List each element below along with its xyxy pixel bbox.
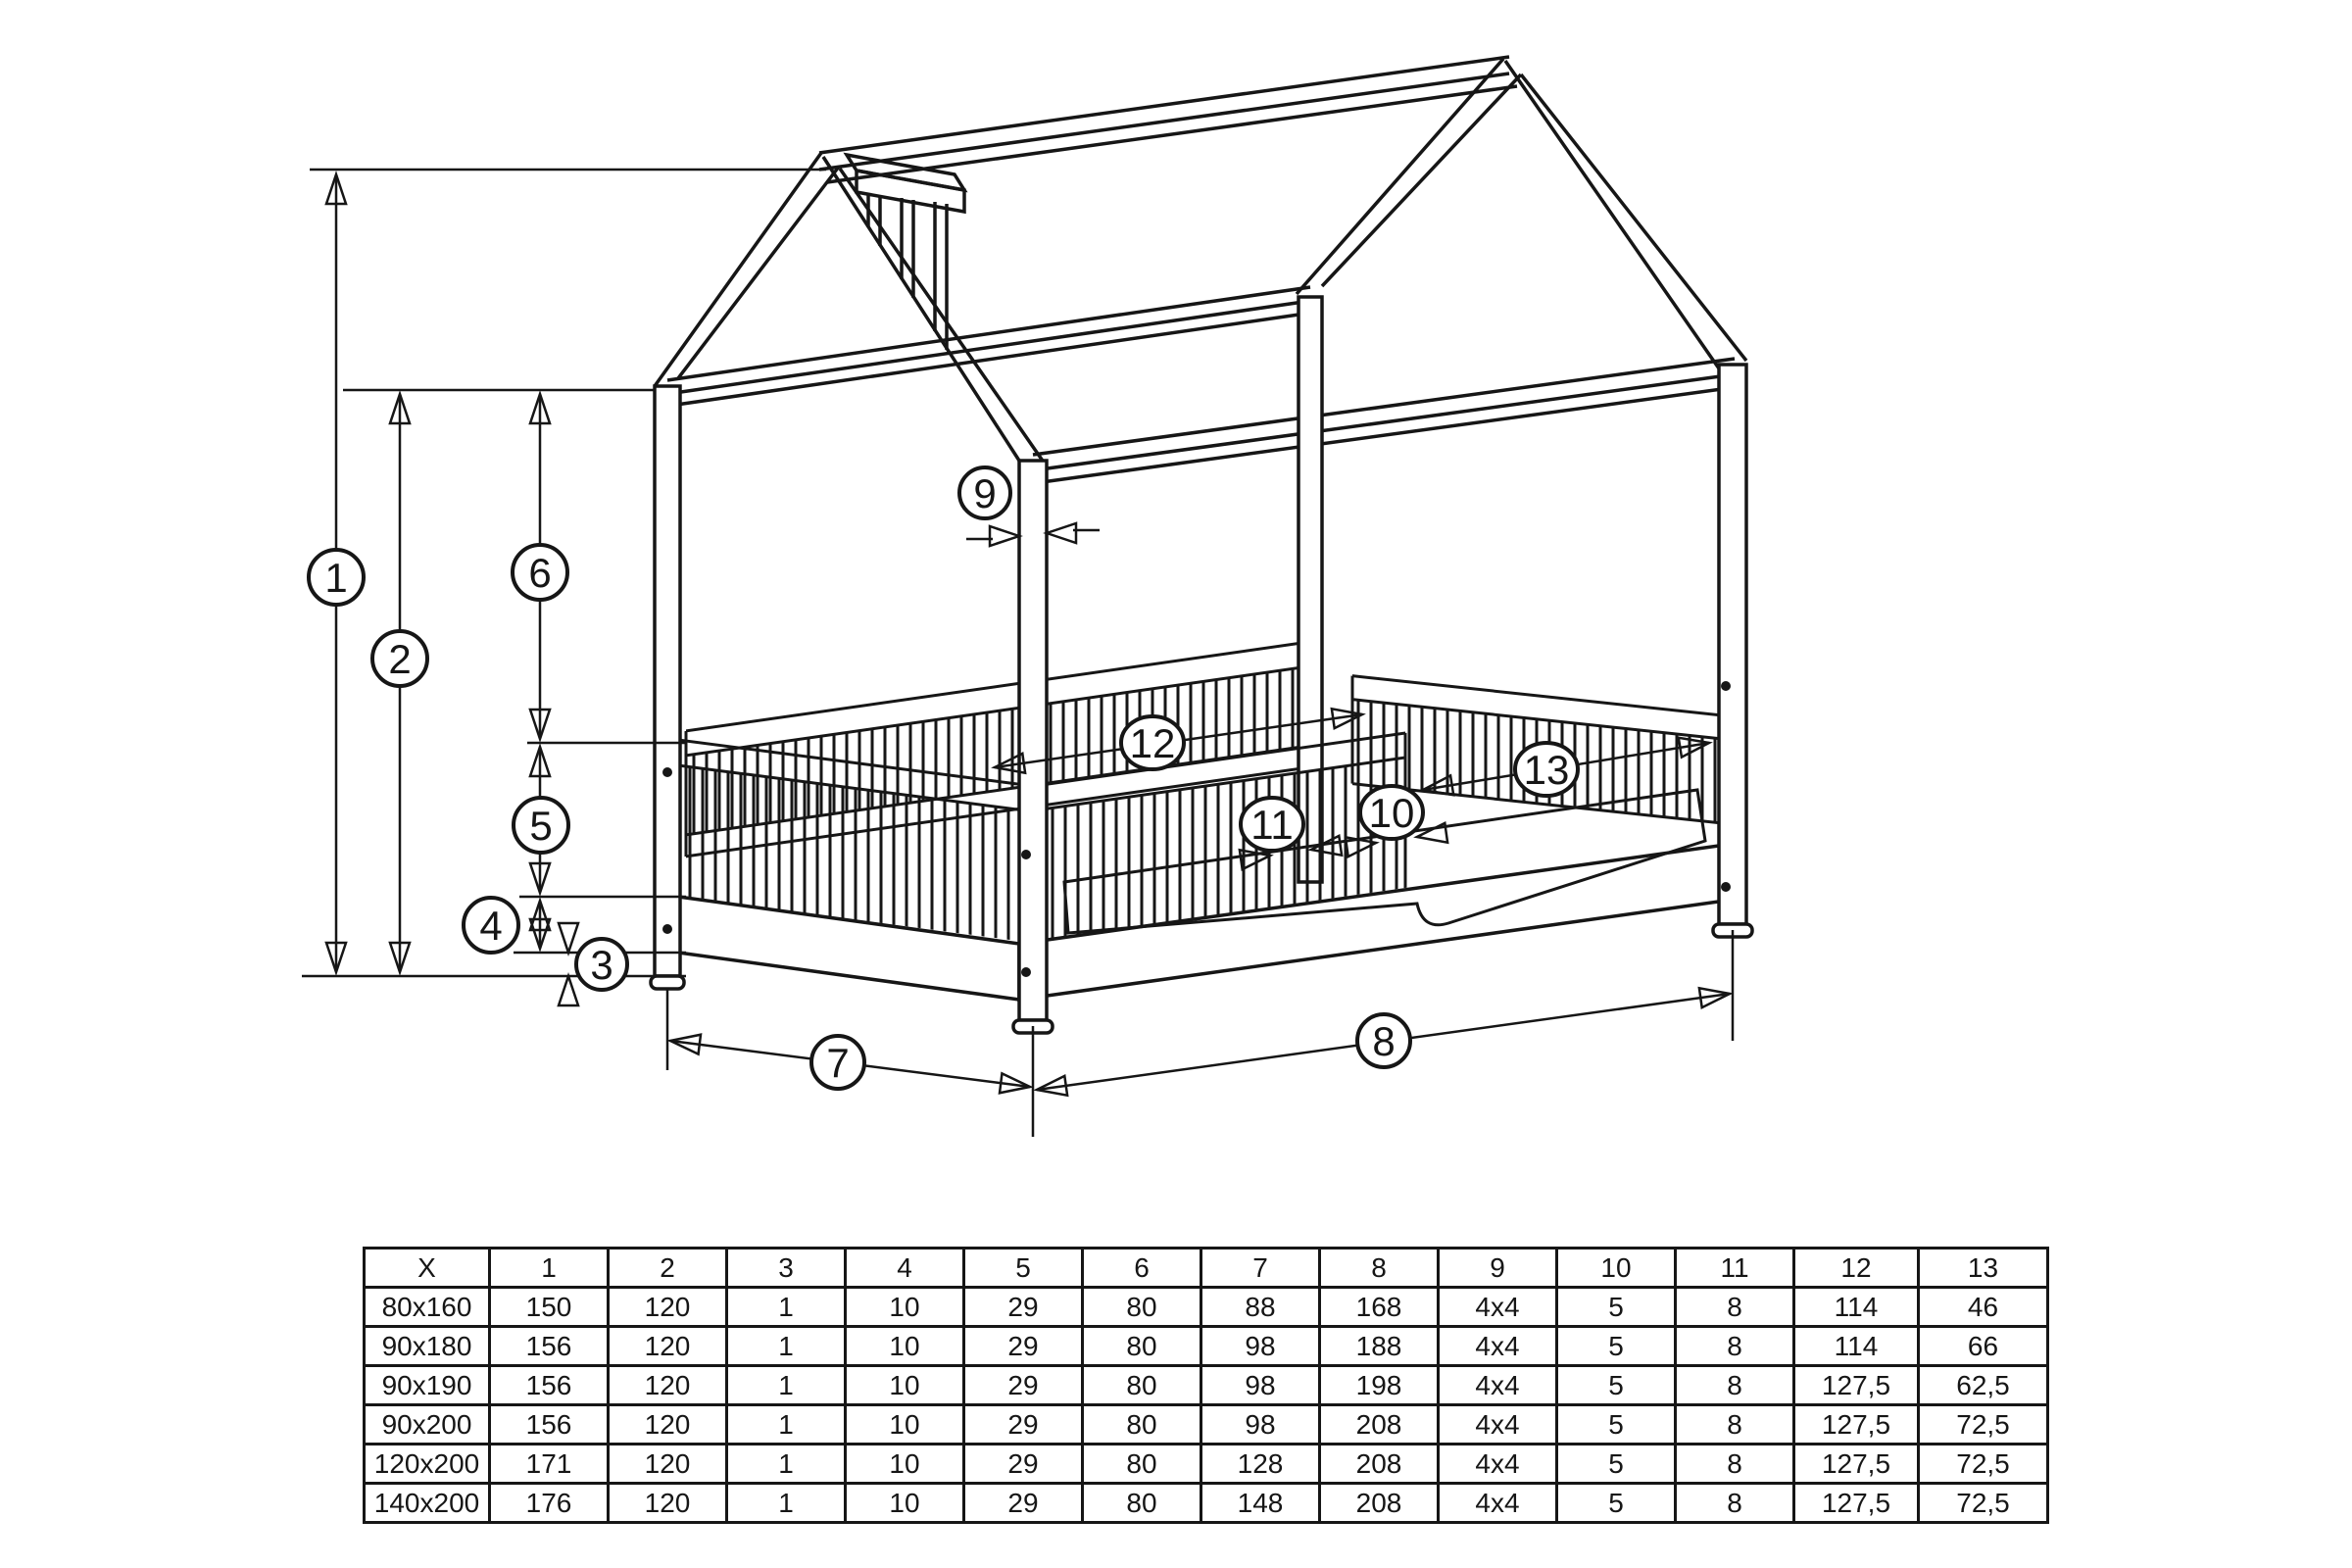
callout-6: 6	[513, 545, 567, 600]
callouts: 1 2 6 5 4 3 7 8 9 12 13 11	[309, 467, 1578, 1089]
table-cell: 4x4	[1439, 1327, 1557, 1366]
table-cell: 5	[1557, 1366, 1676, 1405]
table-cell: 88	[1201, 1288, 1320, 1327]
callout-2: 2	[372, 631, 427, 686]
table-cell: 1	[727, 1327, 846, 1366]
table-header-cell: 8	[1320, 1249, 1439, 1288]
callout-8-label: 8	[1372, 1018, 1395, 1064]
table-header-cell: 4	[846, 1249, 964, 1288]
table-cell: 90x180	[365, 1327, 490, 1366]
table-header-cell: 5	[964, 1249, 1083, 1288]
chimney-slats	[868, 194, 947, 350]
dimensions-table: X12345678910111213 80x160150120110298088…	[363, 1247, 2049, 1524]
table-header-cell: 3	[727, 1249, 846, 1288]
callout-4-label: 4	[479, 903, 502, 949]
table-header-cell: 7	[1201, 1249, 1320, 1288]
table-cell: 29	[964, 1288, 1083, 1327]
callout-3: 3	[576, 939, 627, 990]
table-cell: 171	[490, 1445, 609, 1484]
table-cell: 29	[964, 1484, 1083, 1523]
table-cell: 5	[1557, 1327, 1676, 1366]
table-cell: 127,5	[1794, 1445, 1919, 1484]
table-cell: 29	[964, 1366, 1083, 1405]
rear-foot-post	[1298, 297, 1322, 882]
table-header-cell: X	[365, 1249, 490, 1288]
callout-1: 1	[309, 550, 364, 605]
front-top-plate-beam	[1033, 359, 1743, 482]
extension-lines	[667, 930, 1733, 1137]
table-header-cell: 1	[490, 1249, 609, 1288]
table-cell: 156	[490, 1327, 609, 1366]
table-header-cell: 11	[1676, 1249, 1794, 1288]
table-cell: 120	[609, 1288, 727, 1327]
callout-5-label: 5	[529, 803, 552, 849]
table-cell: 5	[1557, 1405, 1676, 1445]
table-row: 80x1601501201102980881684x45811446	[365, 1288, 2048, 1327]
table-cell: 98	[1201, 1366, 1320, 1405]
table-cell: 5	[1557, 1445, 1676, 1484]
table-cell: 114	[1794, 1288, 1919, 1327]
callout-11: 11	[1241, 798, 1303, 851]
table-cell: 8	[1676, 1484, 1794, 1523]
table-cell: 90x200	[365, 1405, 490, 1445]
roof-frame	[655, 57, 1746, 482]
table-cell: 4x4	[1439, 1445, 1557, 1484]
table-cell: 90x190	[365, 1366, 490, 1405]
table-cell: 127,5	[1794, 1484, 1919, 1523]
dimension-layer: 1 2 6 5 4 3 7 8 9 12 13 11	[302, 170, 1733, 1137]
table-cell: 4x4	[1439, 1405, 1557, 1445]
callout-7: 7	[811, 1036, 864, 1089]
table-cell: 4x4	[1439, 1484, 1557, 1523]
table-header-cell: 10	[1557, 1249, 1676, 1288]
table-cell: 29	[964, 1327, 1083, 1366]
table-cell: 80x160	[365, 1288, 490, 1327]
table-cell: 8	[1676, 1445, 1794, 1484]
table-cell: 127,5	[1794, 1366, 1919, 1405]
table-cell: 1	[727, 1484, 846, 1523]
table-cell: 127,5	[1794, 1405, 1919, 1445]
table-cell: 80	[1083, 1327, 1201, 1366]
table-header-cell: 13	[1919, 1249, 2048, 1288]
table-cell: 66	[1919, 1327, 2048, 1366]
base-head-face	[678, 897, 1019, 1000]
table-cell: 80	[1083, 1484, 1201, 1523]
rear-head-post	[655, 386, 680, 976]
table-cell: 148	[1201, 1484, 1320, 1523]
rear-head-post-pad	[651, 976, 684, 989]
table-cell: 62,5	[1919, 1366, 2048, 1405]
table-cell: 5	[1557, 1288, 1676, 1327]
table-header-cell: 9	[1439, 1249, 1557, 1288]
table-row: 90x1901561201102980981984x458127,562,5	[365, 1366, 2048, 1405]
front-foot-post	[1719, 365, 1746, 924]
table-cell: 156	[490, 1366, 609, 1405]
head-guard-rail	[678, 740, 1019, 941]
callout-1-label: 1	[324, 555, 347, 601]
table-cell: 8	[1676, 1327, 1794, 1366]
table-cell: 80	[1083, 1366, 1201, 1405]
table-cell: 4x4	[1439, 1366, 1557, 1405]
table-cell: 140x200	[365, 1484, 490, 1523]
foot-gable-rear-rafter	[1297, 59, 1521, 294]
table-cell: 72,5	[1919, 1405, 2048, 1445]
table-cell: 80	[1083, 1405, 1201, 1445]
house-posts	[651, 365, 1752, 1033]
table-cell: 208	[1320, 1484, 1439, 1523]
callout-12-label: 12	[1130, 720, 1176, 766]
table-cell: 168	[1320, 1288, 1439, 1327]
front-rail-slats	[1053, 759, 1396, 938]
table-cell: 176	[490, 1484, 609, 1523]
table-cell: 4x4	[1439, 1288, 1557, 1327]
callout-11-label: 11	[1250, 802, 1294, 848]
callout-12: 12	[1121, 716, 1184, 769]
table-header-row: X12345678910111213	[365, 1249, 2048, 1288]
table-cell: 98	[1201, 1405, 1320, 1445]
chimney	[847, 155, 964, 350]
foot-gable-front-rafter	[1505, 61, 1746, 368]
table-cell: 128	[1201, 1445, 1320, 1484]
callout-10: 10	[1360, 786, 1423, 839]
table-cell: 10	[846, 1445, 964, 1484]
callout-3-label: 3	[590, 942, 612, 988]
callout-13: 13	[1515, 743, 1578, 796]
table-cell: 8	[1676, 1366, 1794, 1405]
table-cell: 120x200	[365, 1445, 490, 1484]
callout-10-label: 10	[1369, 790, 1415, 836]
table-header-cell: 12	[1794, 1249, 1919, 1288]
table-header-cell: 6	[1083, 1249, 1201, 1288]
table-cell: 10	[846, 1366, 964, 1405]
table-row: 90x2001561201102980982084x458127,572,5	[365, 1405, 2048, 1445]
table-cell: 29	[964, 1405, 1083, 1445]
callout-9-label: 9	[973, 470, 996, 516]
table-row: 120x20017112011029801282084x458127,572,5	[365, 1445, 2048, 1484]
screw-holes	[662, 681, 1731, 977]
callout-6-label: 6	[528, 550, 551, 596]
table-cell: 80	[1083, 1288, 1201, 1327]
page: 1 2 6 5 4 3 7 8 9 12 13 11	[0, 0, 2352, 1568]
callout-7-label: 7	[826, 1040, 849, 1086]
table-cell: 1	[727, 1445, 846, 1484]
table-cell: 120	[609, 1327, 727, 1366]
table-cell: 10	[846, 1405, 964, 1445]
table-cell: 46	[1919, 1288, 2048, 1327]
head-gable-rear-rafter	[655, 153, 839, 386]
table-cell: 1	[727, 1366, 846, 1405]
table-cell: 98	[1201, 1327, 1320, 1366]
table-cell: 114	[1794, 1327, 1919, 1366]
callout-4: 4	[464, 898, 518, 953]
table-header-cell: 2	[609, 1249, 727, 1288]
table-cell: 10	[846, 1484, 964, 1523]
front-head-post	[1019, 461, 1047, 1020]
table-cell: 120	[609, 1445, 727, 1484]
callout-2-label: 2	[388, 636, 411, 682]
rear-rail-slats	[694, 668, 1293, 833]
table-cell: 72,5	[1919, 1484, 2048, 1523]
table-cell: 8	[1676, 1288, 1794, 1327]
table-cell: 120	[609, 1366, 727, 1405]
table-cell: 1	[727, 1288, 846, 1327]
table-cell: 120	[609, 1484, 727, 1523]
table-cell: 1	[727, 1405, 846, 1445]
callout-8: 8	[1357, 1014, 1410, 1067]
table-row: 90x1801561201102980981884x45811466	[365, 1327, 2048, 1366]
table-cell: 80	[1083, 1445, 1201, 1484]
table-cell: 10	[846, 1327, 964, 1366]
table-cell: 188	[1320, 1327, 1439, 1366]
table-cell: 208	[1320, 1405, 1439, 1445]
callout-5: 5	[514, 798, 568, 853]
table-cell: 198	[1320, 1366, 1439, 1405]
table-cell: 150	[490, 1288, 609, 1327]
table-cell: 29	[964, 1445, 1083, 1484]
table-cell: 8	[1676, 1405, 1794, 1445]
table-cell: 10	[846, 1288, 964, 1327]
callout-13-label: 13	[1524, 747, 1570, 793]
table-body: 80x1601501201102980881684x4581144690x180…	[365, 1288, 2048, 1523]
table-cell: 72,5	[1919, 1445, 2048, 1484]
table-cell: 120	[609, 1405, 727, 1445]
callout-9: 9	[959, 467, 1010, 518]
table-cell: 5	[1557, 1484, 1676, 1523]
table-row: 140x20017612011029801482084x458127,572,5	[365, 1484, 2048, 1523]
table-cell: 208	[1320, 1445, 1439, 1484]
table-cell: 156	[490, 1405, 609, 1445]
